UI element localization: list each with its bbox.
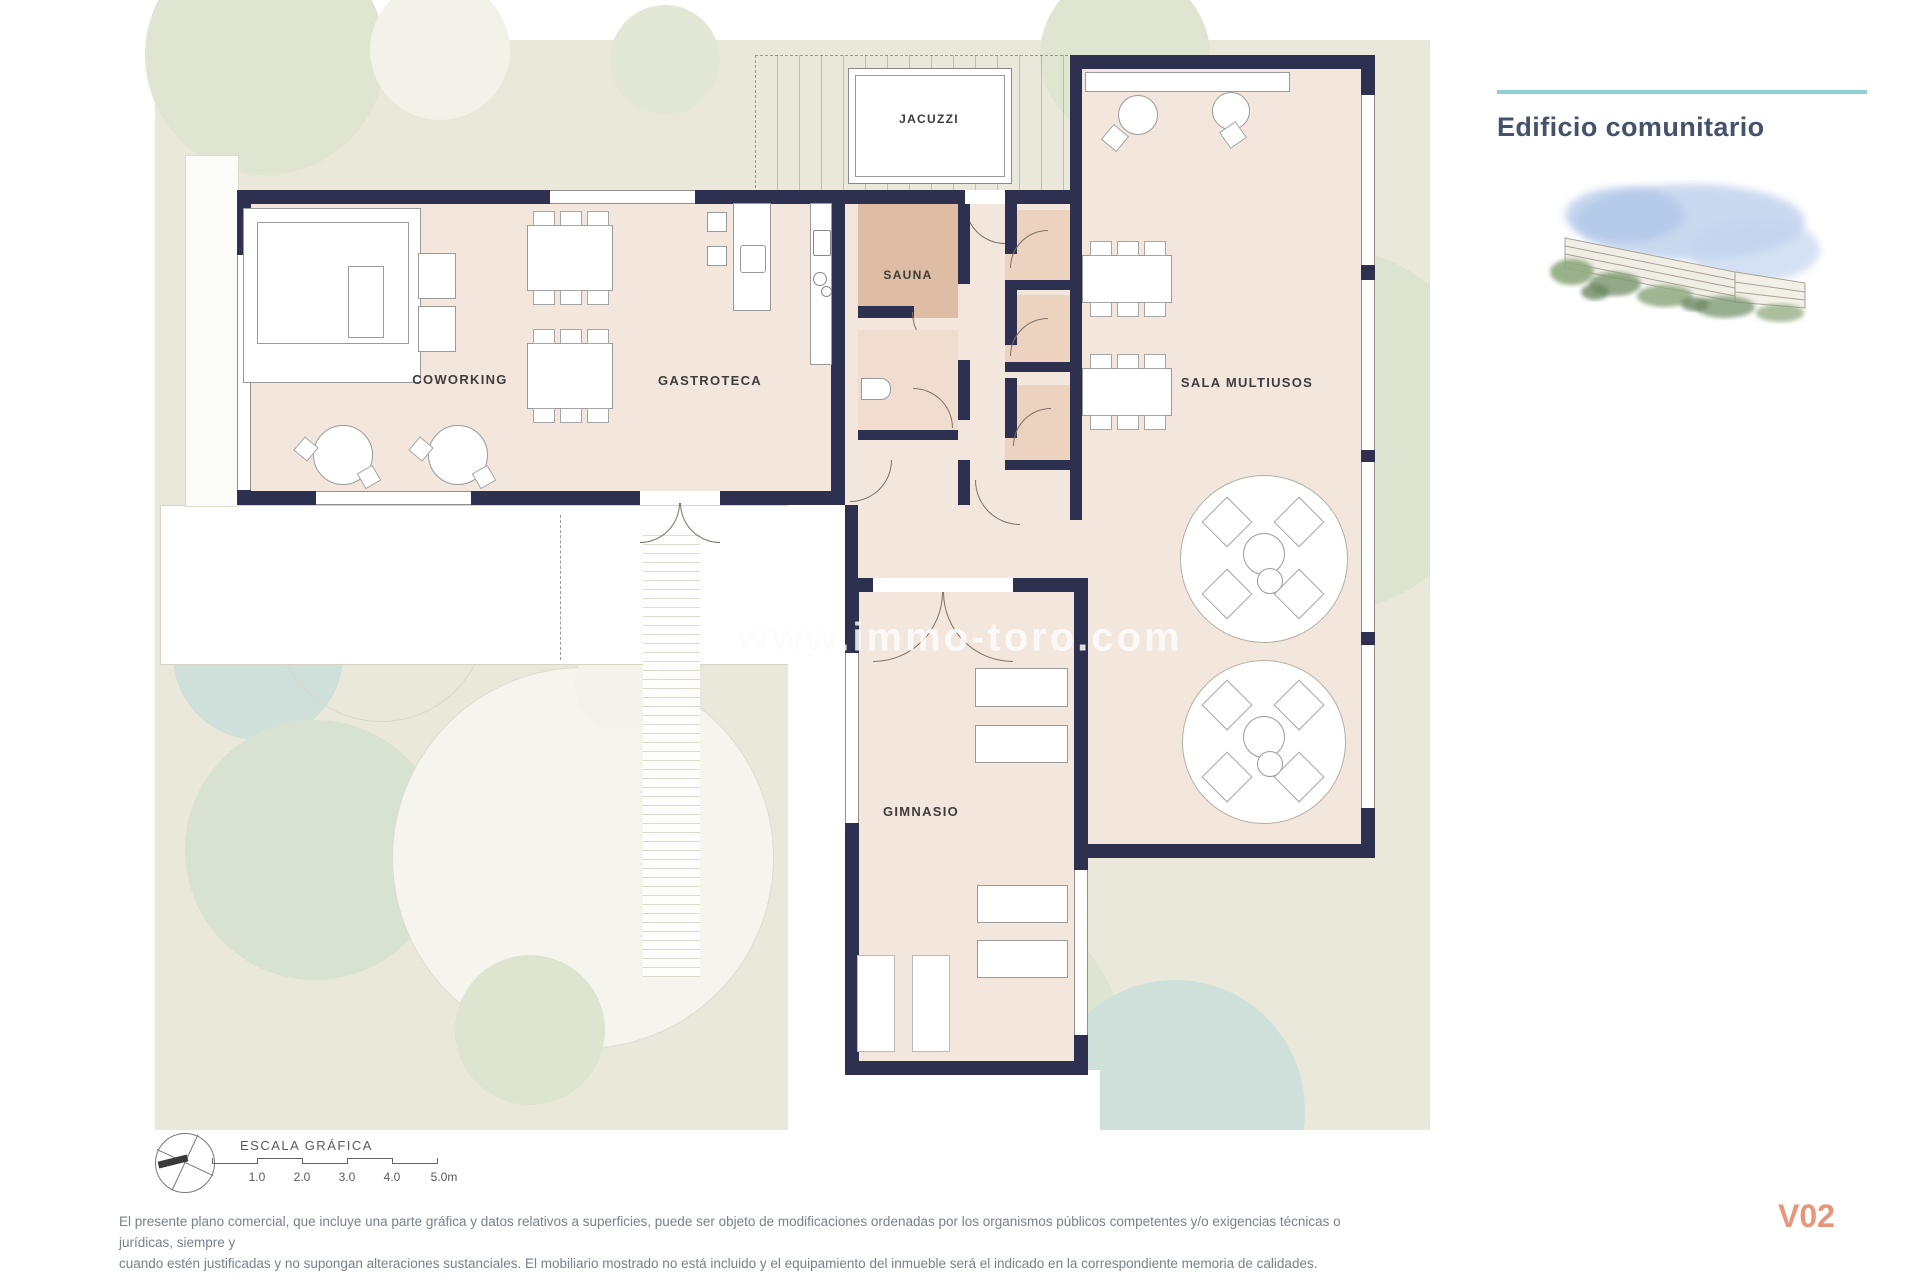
room-label-jacuzzi: JACUZZI [848, 112, 1010, 126]
window [550, 190, 695, 204]
room-label-coworking: COWORKING [385, 372, 535, 387]
armchair [1202, 680, 1253, 731]
scale-tick-label: 3.0 [330, 1170, 364, 1184]
title-accent-line [1497, 90, 1867, 94]
window [1361, 280, 1375, 450]
scale-ruler-segment [392, 1163, 437, 1164]
counter [1085, 72, 1290, 92]
chair [533, 329, 555, 344]
stove-burner [821, 286, 832, 297]
scale-tick-label: 4.0 [375, 1170, 409, 1184]
chair [533, 408, 555, 423]
boardwalk [643, 527, 700, 977]
scale-tick-label: 1.0 [240, 1170, 274, 1184]
window [1074, 870, 1088, 1035]
wall [858, 306, 914, 318]
room-label-gimnasio: GIMNASIO [851, 804, 991, 819]
watermark: www.immo-toro.com [737, 616, 1182, 661]
chair [1144, 302, 1166, 317]
scale-bar-label: ESCALA GRÁFICA [240, 1138, 373, 1153]
disclaimer-line-1: El presente plano comercial, que incluye… [119, 1212, 1379, 1254]
room-sauna [858, 204, 958, 318]
floor-plan-canvas: JACUZZI [155, 40, 1430, 1130]
chair [1144, 241, 1166, 256]
coffee-table [348, 266, 384, 338]
side-table [1257, 751, 1283, 777]
armchair [1274, 497, 1325, 548]
stool [707, 212, 727, 232]
scale-ruler-segment [302, 1163, 347, 1164]
dining-table [527, 343, 613, 409]
scale-ruler-tick [302, 1158, 303, 1164]
vestibule-floor [858, 505, 1070, 578]
island-sink [740, 245, 766, 273]
gym-equipment [977, 885, 1068, 923]
window [316, 491, 471, 505]
chair [587, 211, 609, 226]
door-opening [873, 578, 1013, 592]
chair [560, 290, 582, 305]
chair [1117, 302, 1139, 317]
scale-ruler-tick [257, 1158, 258, 1164]
room-label-gastroteca: GASTROTECA [635, 373, 785, 388]
chair [1117, 354, 1139, 369]
scale-tick-label: 5.0m [422, 1170, 466, 1184]
dining-table [527, 225, 613, 291]
stool [707, 246, 727, 266]
chair [587, 408, 609, 423]
lounge-circle [1182, 660, 1346, 824]
window [1361, 95, 1375, 265]
wall [845, 190, 965, 204]
scale-ruler-tick [437, 1158, 438, 1164]
door-opening [965, 190, 1005, 204]
scale-tick-label: 2.0 [285, 1170, 319, 1184]
terrace-strip [788, 1070, 1100, 1130]
chair [1090, 241, 1112, 256]
scale-ruler-tick [347, 1158, 348, 1164]
scale-ruler-segment [347, 1158, 392, 1159]
tree-circle [455, 955, 605, 1105]
chair [560, 408, 582, 423]
chair [1090, 354, 1112, 369]
sofa-inner [257, 222, 409, 344]
jacuzzi-box [848, 68, 1012, 184]
chair [1117, 415, 1139, 430]
scale-ruler-tick [392, 1158, 393, 1164]
building-illustration [1540, 180, 1830, 340]
wall [1005, 378, 1017, 438]
window [845, 653, 859, 823]
gym-mat [857, 955, 895, 1052]
chair [1144, 415, 1166, 430]
gym-mat [912, 955, 950, 1052]
wall [845, 505, 858, 578]
page: JACUZZI [0, 0, 1920, 1280]
chair [1090, 302, 1112, 317]
chair [1117, 241, 1139, 256]
tree-circle [610, 5, 720, 115]
chair [587, 290, 609, 305]
scale-ruler-segment [212, 1163, 257, 1164]
armchair [1202, 752, 1253, 803]
chair [533, 211, 555, 226]
stool-table [1118, 95, 1158, 135]
wall [958, 460, 970, 505]
stove-burner [813, 272, 827, 286]
wall [1070, 55, 1082, 520]
scale-ruler-segment [257, 1158, 302, 1159]
dining-table [1082, 255, 1172, 303]
chair [533, 290, 555, 305]
armchair [1274, 680, 1325, 731]
room-label-sauna: SAUNA [848, 268, 968, 282]
gym-equipment [975, 725, 1068, 763]
gym-equipment [975, 668, 1068, 707]
chair [560, 211, 582, 226]
disclaimer-text: El presente plano comercial, que incluye… [119, 1212, 1379, 1275]
jacuzzi-frame [855, 75, 1005, 177]
armchair [418, 253, 456, 299]
armchair [1202, 497, 1253, 548]
gym-equipment [977, 940, 1068, 978]
chair [587, 329, 609, 344]
wall [858, 430, 958, 440]
porch [185, 155, 239, 507]
chair [560, 329, 582, 344]
armchair [1202, 569, 1253, 620]
room-label-sala-multiusos: SALA MULTIUSOS [1117, 375, 1377, 390]
window [1361, 645, 1375, 808]
version-label: V02 [1778, 1198, 1835, 1235]
wall [958, 360, 970, 420]
scale-ruler-tick [212, 1158, 213, 1164]
terrace-strip [788, 505, 845, 1130]
chair [1090, 415, 1112, 430]
page-title: Edificio comunitario [1497, 112, 1765, 143]
disclaimer-line-2: cuando estén justificadas y no supongan … [119, 1254, 1379, 1275]
terrace-divider [560, 515, 561, 660]
lounge-circle [1180, 475, 1348, 643]
toilet [861, 378, 891, 400]
compass-icon [155, 1133, 215, 1193]
chair [1144, 354, 1166, 369]
window [1361, 462, 1375, 632]
armchair [418, 306, 456, 352]
sink [813, 230, 831, 256]
side-table [1257, 568, 1283, 594]
